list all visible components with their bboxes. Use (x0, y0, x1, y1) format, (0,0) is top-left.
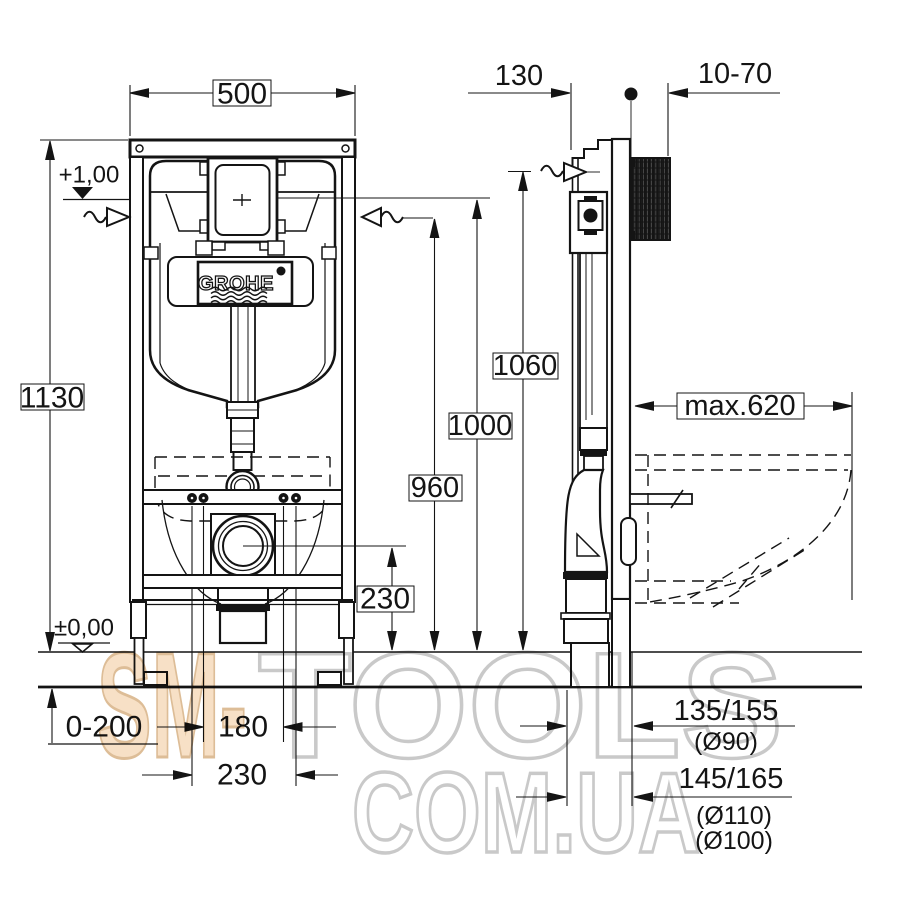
label-max-projection: max.620 (684, 390, 795, 422)
water-supply-arrow-right (362, 208, 403, 226)
watermark: SM- TOOLS COM.UA (97, 621, 783, 877)
label-height-960: 960 (411, 472, 459, 504)
lower-crossbar (143, 575, 342, 588)
label-frame-height: 1130 (20, 382, 85, 415)
watermark-domain: COM.UA (352, 750, 700, 877)
upper-crossbar (143, 490, 342, 504)
water-supply-arrow-side (541, 163, 586, 181)
datum-dot-icon (625, 88, 638, 101)
installation-frame-drawing: GROHE (0, 0, 900, 900)
label-outlet-height: 230 (360, 583, 410, 616)
frame-right-rail (342, 157, 355, 602)
label-level-top: +1,00 (59, 162, 120, 189)
valve-icon (584, 209, 598, 223)
screw-hole-icon (342, 145, 349, 152)
water-supply-arrow-left (84, 208, 129, 226)
wall-bolt (630, 494, 692, 504)
watermark-sm: SM- (97, 621, 247, 789)
level-marker-top (63, 187, 129, 200)
bowl-outline-side (635, 455, 851, 607)
label-outlet-dia-alt: (Ø100) (695, 827, 773, 855)
label-height-1000: 1000 (448, 410, 513, 442)
wall-anchor-block (632, 158, 670, 240)
inlet-valve-box (570, 192, 607, 253)
technical-drawing-page: GROHE (0, 0, 900, 900)
screw-hole-icon (136, 145, 143, 152)
label-outlet-dia-large: (Ø110) (696, 802, 772, 830)
frame-left-rail (130, 157, 143, 602)
grohe-logo-plate: GROHE (168, 257, 313, 306)
label-wall-adjust: 10-70 (698, 58, 772, 90)
label-height-1060: 1060 (493, 350, 558, 382)
frame-top-rail (130, 140, 355, 157)
label-frame-depth: 130 (495, 60, 543, 92)
label-frame-width: 500 (217, 78, 267, 111)
inspection-shaft (200, 158, 285, 250)
registered-mark-icon (277, 267, 286, 276)
